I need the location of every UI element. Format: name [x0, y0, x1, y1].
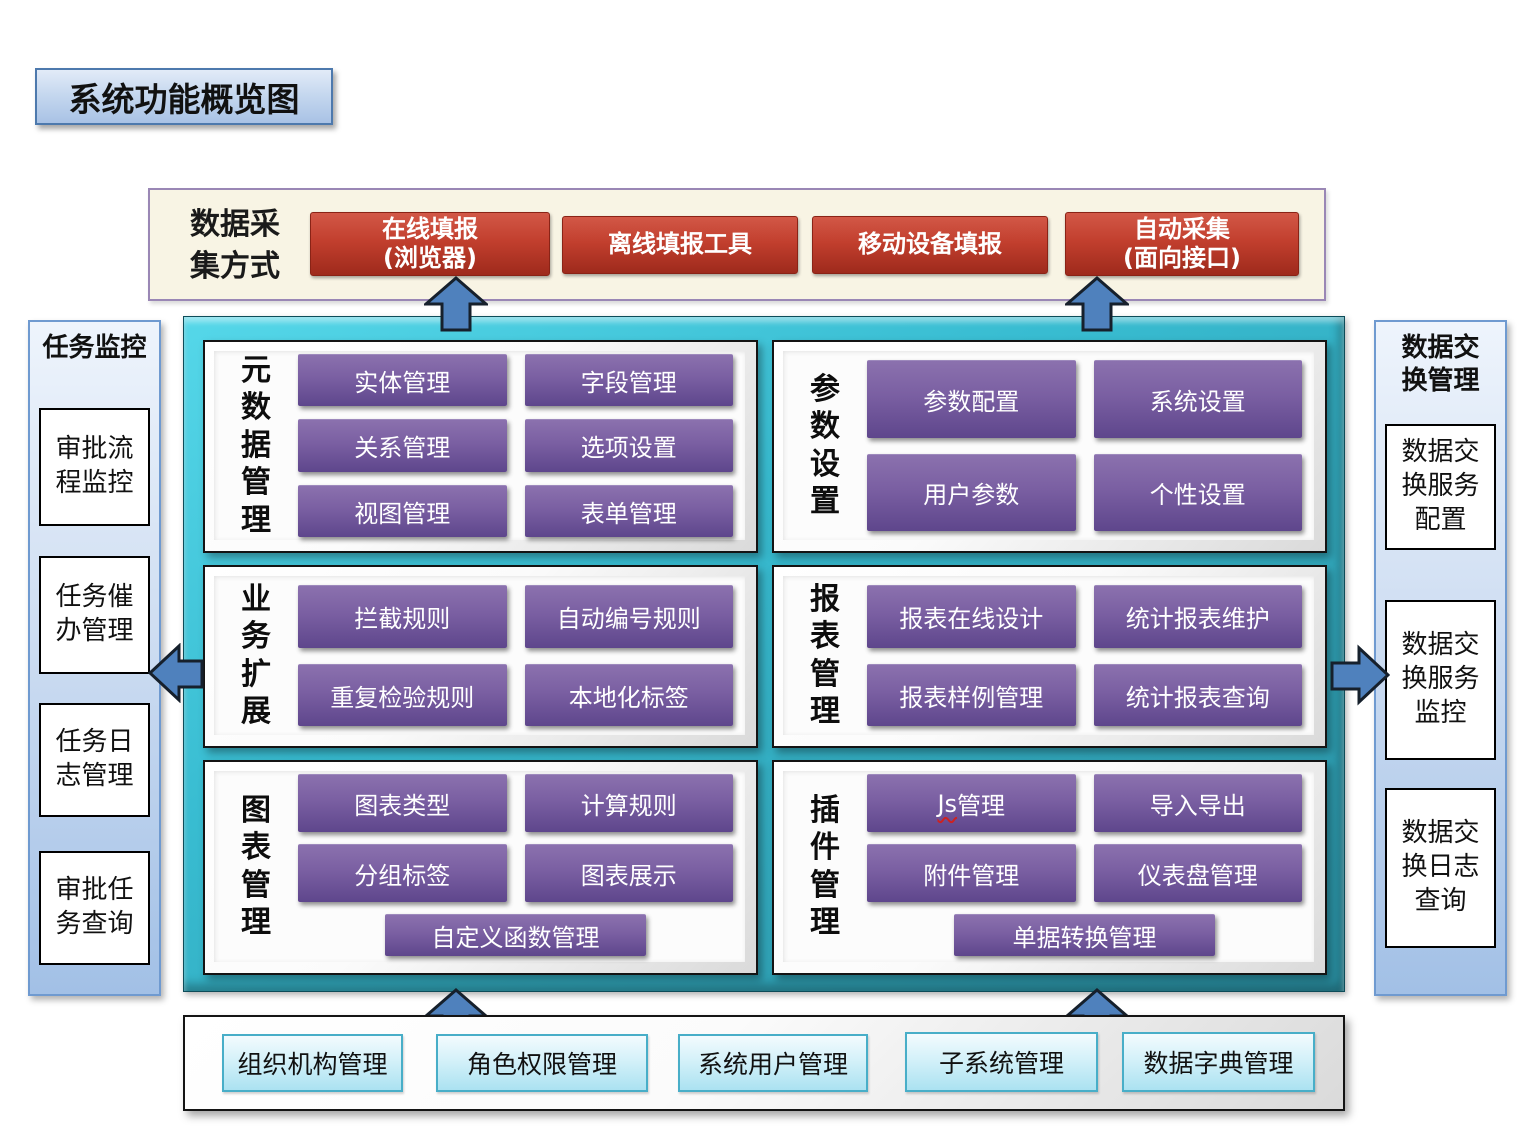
panel-metadata-management: 元数据管理 实体管理 字段管理 关系管理 选项设置 视图管理 表单管理 [203, 340, 758, 553]
data-exchange-sidebar: 数据交换管理 数据交换服务配置 数据交换服务监控 数据交换日志查询 [1374, 320, 1507, 996]
module-button: 自动编号规则 [525, 585, 734, 648]
panel-chart-management: 图表管理 图表类型 计算规则 分组标签 图表展示 自定义函数管理 [203, 760, 758, 975]
module-button: 报表在线设计 [867, 585, 1076, 648]
task-monitor-item: 任务催办管理 [39, 556, 150, 674]
module-button: 重复检验规则 [298, 664, 507, 727]
module-button: 实体管理 [298, 354, 507, 406]
panel-label: 参数设置 [783, 351, 867, 540]
module-button: 选项设置 [525, 419, 734, 471]
panel-label: 业务扩展 [214, 576, 298, 735]
module-button-wide: 单据转换管理 [954, 914, 1215, 956]
foundation-item: 系统用户管理 [678, 1034, 868, 1092]
collection-method-offline-tool: 离线填报工具 [562, 216, 798, 274]
collection-method-auto: 自动采集 (面向接口) [1065, 212, 1299, 276]
foundation-item: 子系统管理 [905, 1032, 1098, 1092]
task-monitor-title-text: 任务监控 [39, 332, 151, 365]
module-button-wide: 自定义函数管理 [385, 914, 646, 956]
module-button: 本地化标签 [525, 664, 734, 727]
task-monitor-sidebar: 任务监控 审批流程监控 任务催办管理 任务日志管理 审批任务查询 [28, 320, 161, 996]
module-button: 视图管理 [298, 485, 507, 537]
task-monitor-item: 任务日志管理 [39, 703, 150, 817]
arrow-up-icon [1065, 276, 1129, 332]
module-button: 表单管理 [525, 485, 734, 537]
panel-business-extension: 业务扩展 拦截规则 自动编号规则 重复检验规则 本地化标签 [203, 565, 758, 748]
module-button: 关系管理 [298, 419, 507, 471]
panel-label: 报表管理 [783, 576, 867, 735]
data-exchange-item: 数据交换服务监控 [1385, 600, 1496, 760]
panel-parameter-settings: 参数设置 参数配置 系统设置 用户参数 个性设置 [772, 340, 1327, 553]
js-prefix: Js [937, 790, 957, 818]
module-button: 统计报表查询 [1094, 664, 1303, 727]
panel-plugin-management: 插件管理 Js管理 导入导出 附件管理 仪表盘管理 单据转换管理 [772, 760, 1327, 975]
js-suffix: 管理 [957, 786, 1005, 821]
panel-label: 插件管理 [783, 771, 867, 962]
data-exchange-title-text: 数据交换管理 [1399, 332, 1483, 397]
collection-method-online: 在线填报 (浏览器) [310, 212, 550, 276]
module-button: 报表样例管理 [867, 664, 1076, 727]
task-monitor-title: 任务监控 [30, 332, 159, 365]
module-button-js: Js管理 [867, 774, 1076, 832]
module-button: 分组标签 [298, 844, 507, 902]
module-button: 图表类型 [298, 774, 507, 832]
arrow-left-icon [148, 643, 204, 703]
task-monitor-item: 审批任务查询 [39, 851, 150, 965]
module-button: 系统设置 [1094, 360, 1303, 438]
module-button: 附件管理 [867, 844, 1076, 902]
module-button: 拦截规则 [298, 585, 507, 648]
arrow-right-icon [1330, 644, 1390, 706]
data-exchange-item: 数据交换日志查询 [1385, 788, 1496, 948]
data-exchange-title: 数据交换管理 [1376, 332, 1505, 397]
module-button: 用户参数 [867, 454, 1076, 532]
foundation-item: 角色权限管理 [436, 1034, 648, 1092]
task-monitor-item: 审批流程监控 [39, 408, 150, 526]
module-button: 字段管理 [525, 354, 734, 406]
module-button: 图表展示 [525, 844, 734, 902]
module-button: 计算规则 [525, 774, 734, 832]
data-collection-section: 数据采集方式 在线填报 (浏览器) 离线填报工具 移动设备填报 自动采集 (面向… [148, 188, 1326, 301]
foundation-item: 组织机构管理 [222, 1034, 403, 1092]
foundation-item: 数据字典管理 [1122, 1032, 1315, 1092]
foundation-section: 组织机构管理 角色权限管理 系统用户管理 子系统管理 数据字典管理 [183, 1015, 1345, 1111]
panel-label: 元数据管理 [214, 351, 298, 540]
data-collection-label: 数据采集方式 [190, 204, 290, 288]
panel-label: 图表管理 [214, 771, 298, 962]
module-button: 参数配置 [867, 360, 1076, 438]
module-button: 统计报表维护 [1094, 585, 1303, 648]
collection-method-mobile: 移动设备填报 [812, 216, 1048, 274]
module-button: 个性设置 [1094, 454, 1303, 532]
panel-report-management: 报表管理 报表在线设计 统计报表维护 报表样例管理 统计报表查询 [772, 565, 1327, 748]
module-button: 导入导出 [1094, 774, 1303, 832]
module-button: 仪表盘管理 [1094, 844, 1303, 902]
page-title: 系统功能概览图 [35, 68, 333, 125]
data-exchange-item: 数据交换服务配置 [1385, 424, 1496, 550]
arrow-up-icon [424, 276, 488, 332]
